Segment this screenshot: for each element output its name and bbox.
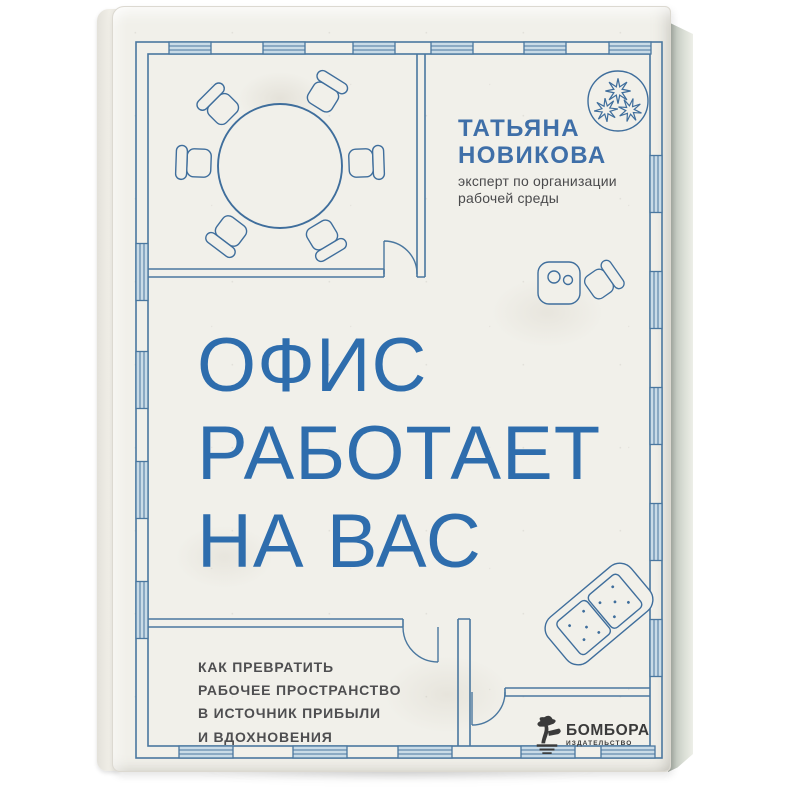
publisher-type: ИЗДАТЕЛЬСТВО — [566, 740, 650, 747]
publisher-text: БОМБОРА ИЗДАТЕЛЬСТВО — [566, 713, 650, 747]
book-product-image: ТАТЬЯНА НОВИКОВА эксперт по организации … — [0, 0, 800, 800]
chair-icon — [302, 68, 349, 116]
workstation-desk-icon — [538, 258, 626, 304]
author-name-line: ТАТЬЯНА — [458, 115, 607, 142]
subtitle-line: КАК ПРЕВРАТИТЬ — [198, 656, 401, 679]
title-line: РАБОТАЕТ — [197, 410, 601, 498]
chair-icon — [301, 216, 348, 264]
chair-icon — [580, 258, 626, 304]
bonsai-tree-logo-icon — [533, 713, 561, 757]
author-role: эксперт по организации рабочей среды — [458, 173, 617, 207]
author-name: ТАТЬЯНА НОВИКОВА — [458, 115, 607, 169]
publisher-logo: БОМБОРА ИЗДАТЕЛЬСТВО — [533, 713, 650, 757]
author-name-line: НОВИКОВА — [458, 142, 607, 169]
book-title: ОФИС РАБОТАЕТ НА ВАС — [197, 322, 601, 586]
author-role-line: рабочей среды — [458, 190, 617, 207]
window-icons-top — [169, 42, 651, 54]
title-line: НА ВАС — [197, 498, 601, 586]
chair-icon — [348, 145, 384, 180]
title-line: ОФИС — [197, 322, 601, 410]
window-icons-left — [136, 244, 148, 639]
chair-icon — [175, 145, 211, 180]
publisher-name: БОМБОРА — [566, 723, 650, 738]
subtitle-line: РАБОЧЕЕ ПРОСТРАНСТВО — [198, 679, 401, 702]
subtitle-line: В ИСТОЧНИК ПРИБЫЛИ — [198, 702, 401, 725]
book-subtitle: КАК ПРЕВРАТИТЬ РАБОЧЕЕ ПРОСТРАНСТВО В ИС… — [198, 656, 401, 749]
subtitle-line: И ВДОХНОВЕНИЯ — [198, 726, 401, 749]
chair-icon — [204, 211, 252, 259]
author-role-line: эксперт по организации — [458, 173, 617, 190]
round-table-icon — [218, 104, 342, 228]
